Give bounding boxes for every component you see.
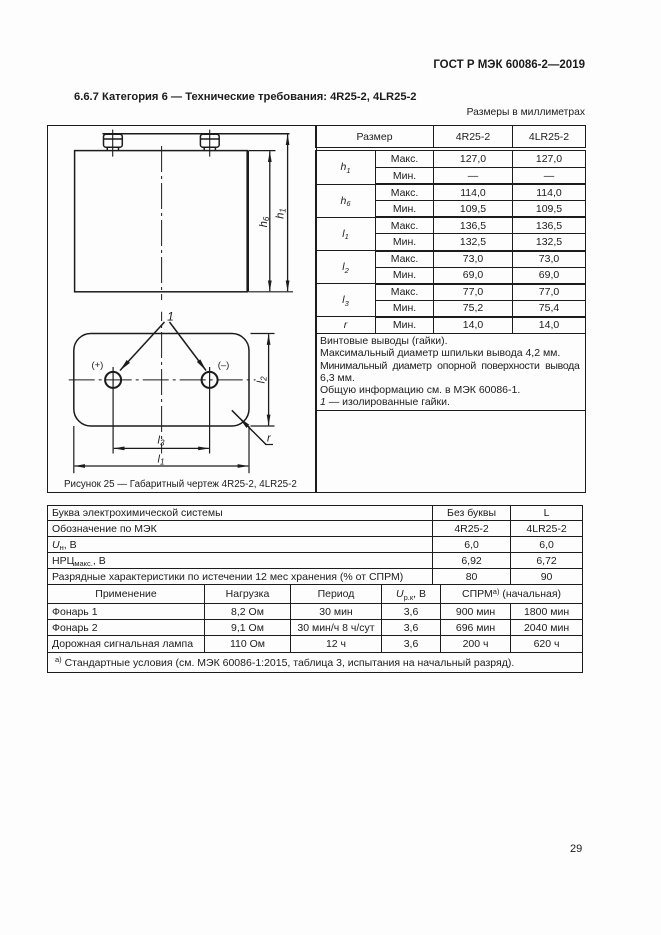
svg-text:l1: l1 — [158, 454, 165, 467]
svg-text:h1: h1 — [275, 208, 288, 219]
svg-text:r: r — [267, 433, 272, 445]
svg-text:h6: h6 — [258, 216, 271, 227]
svg-text:(+): (+) — [91, 360, 103, 371]
svg-text:1: 1 — [167, 310, 174, 324]
svg-text:l2: l2 — [256, 376, 269, 383]
svg-text:(–): (–) — [218, 360, 230, 371]
